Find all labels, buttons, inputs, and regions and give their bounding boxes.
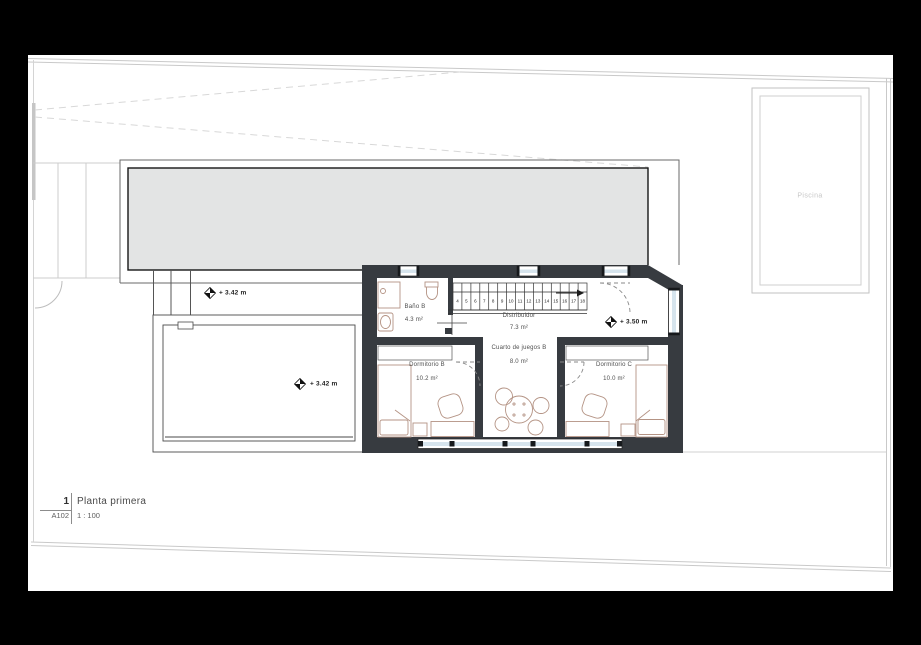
room-label-juegos: Cuarto de juegos B [492,345,547,351]
room-label-bano: Baño B [405,304,426,310]
pool-label: Piscina [797,193,822,200]
room-area-bano: 4.3 m² [405,317,423,323]
room-area-juegos: 8.0 m² [510,359,528,365]
level-marker-icon [205,288,216,299]
roof-terrace-stubs [154,270,191,315]
window-top-2 [517,266,540,276]
pool-outline [752,88,869,293]
lower-roof [120,160,679,283]
titleblock-detail-number: 1 [40,496,69,507]
roof-projection-lines [35,72,648,167]
titleblock-view-title: Planta primera [77,496,146,507]
room-label-dormitorio-c: Dormitorio C [596,362,632,368]
window-right [669,288,680,335]
window-top-1 [398,266,419,276]
level-label-roof-terrace: + 3.42 m [219,290,246,297]
plan-linework [0,0,921,645]
window-band-south [418,439,622,449]
room-area-distribuidor: 7.3 m² [510,325,528,331]
window-top-3 [602,266,630,276]
level-label-lower-terrace: + 3.42 m [310,381,337,388]
room-label-distribuidor: Distribuidor [503,313,536,319]
room-area-dormitorio-c: 10.0 m² [603,376,625,382]
drawing-canvas: Baño B 4.3 m² Distribuidor 7.3 m² Cuarto… [0,0,921,645]
titleblock-scale: 1 : 100 [77,511,100,520]
titleblock-sheet-code: A102 [40,511,69,520]
room-area-dormitorio-b: 10.2 m² [416,376,438,382]
room-label-dormitorio-b: Dormitorio B [409,362,445,368]
level-label-interior: + 3.50 m [620,319,647,326]
